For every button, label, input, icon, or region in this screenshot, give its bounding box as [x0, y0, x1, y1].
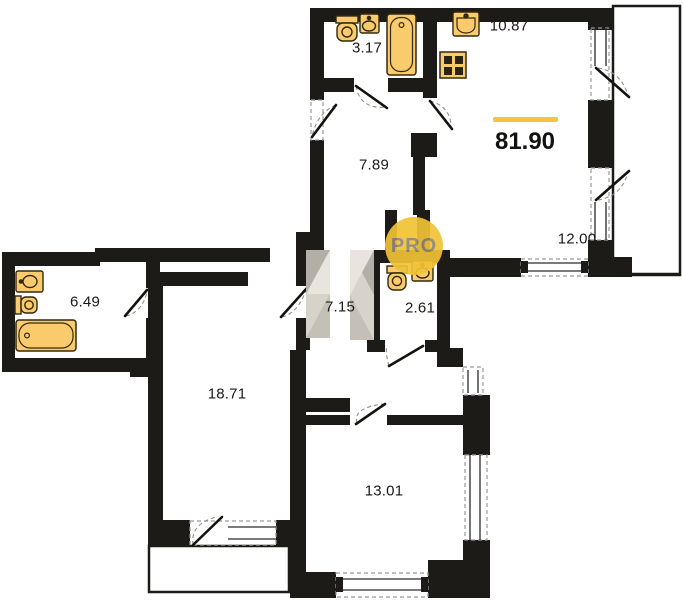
watermark-text: PRO: [391, 235, 437, 258]
wardrobe-icon: [306, 250, 330, 338]
stove-icon: [440, 52, 466, 78]
total-area-accent-line: [493, 117, 558, 122]
room-area-label-wc: 2.61: [405, 300, 435, 317]
toilet-icon: [15, 296, 37, 314]
windows: [190, 28, 609, 597]
kitchen-sink-icon: [453, 12, 479, 36]
total-area-label: 81.90: [495, 128, 555, 156]
wardrobe-icon: [350, 250, 374, 340]
room-area-label-bedroom-1: 18.71: [208, 386, 247, 403]
toilet-icon: [336, 16, 358, 41]
sink-icon: [360, 14, 379, 33]
floorplan: 3.17 10.87 7.89 12.00 6.49 7.15 2.61 18.…: [0, 0, 683, 600]
room-area-label-living-room: 12.00: [558, 231, 597, 248]
room-area-label-bathroom-left: 6.49: [70, 294, 100, 311]
balcony-right: [613, 6, 680, 275]
watermark-badge: PRO: [385, 217, 443, 275]
room-area-label-bathroom-top: 3.17: [352, 40, 382, 57]
bathtub-icon: [16, 320, 76, 351]
sink-icon: [16, 271, 43, 292]
room-area-label-hallway: 7.89: [359, 157, 389, 174]
room-area-label-corridor: 7.15: [325, 299, 355, 316]
balcony-bottom-left: [149, 546, 289, 592]
room-area-label-kitchen: 10.87: [490, 18, 529, 35]
bathtub-icon: [387, 14, 416, 75]
room-area-label-bedroom-2: 13.01: [365, 483, 404, 500]
